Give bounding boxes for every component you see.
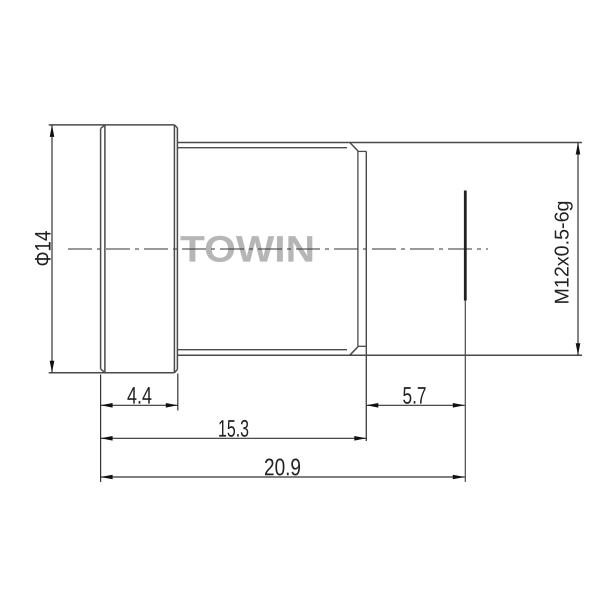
svg-text:4.4: 4.4 — [127, 383, 152, 410]
svg-text:15.3: 15.3 — [218, 416, 249, 443]
svg-text:M12x0.5-6g: M12x0.5-6g — [552, 201, 574, 305]
svg-text:20.9: 20.9 — [264, 454, 301, 481]
svg-text:5.7: 5.7 — [402, 383, 426, 410]
svg-text:Φ14: Φ14 — [31, 231, 56, 267]
